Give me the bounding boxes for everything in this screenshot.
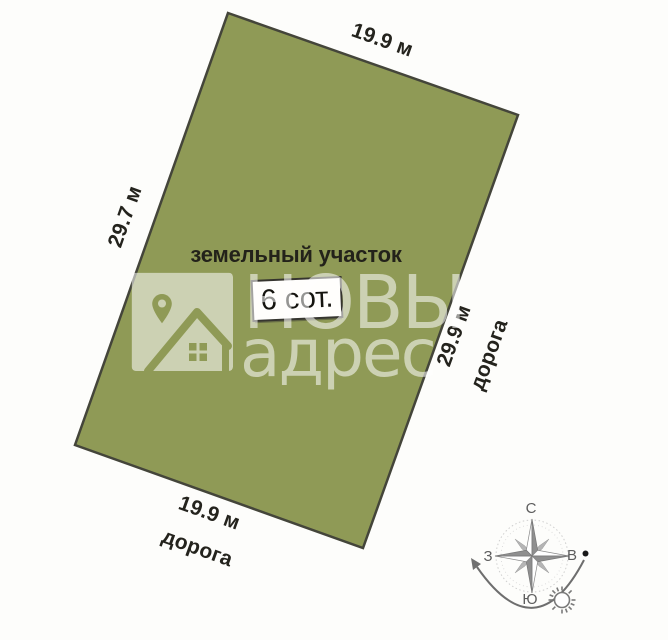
compass-west-label: З	[483, 548, 492, 565]
east-marker-dot	[583, 551, 589, 557]
compass-east-label: В	[567, 547, 577, 564]
site-plan-canvas: 19.9 м 29.7 м 29.9 м дорога 19.9 м дорог…	[0, 0, 668, 640]
top-length-label: 19.9 м	[349, 19, 416, 62]
left-length-label: 29.7 м	[104, 183, 147, 250]
watermark-brand-bottom: адрес	[240, 315, 435, 392]
compass-rose: С Ю З В	[471, 500, 589, 614]
compass-south-label: Ю	[522, 591, 537, 608]
right-road-label: дорога	[466, 316, 513, 393]
compass-star-main	[495, 519, 569, 593]
sun-path-arrowhead	[471, 558, 481, 570]
land-plot-diagram: 19.9 м 29.7 м 29.9 м дорога 19.9 м дорог…	[0, 0, 668, 640]
compass-north-label: С	[526, 500, 537, 517]
bottom-road-label: дорога	[159, 525, 236, 572]
watermark-logo-tile	[132, 273, 233, 371]
